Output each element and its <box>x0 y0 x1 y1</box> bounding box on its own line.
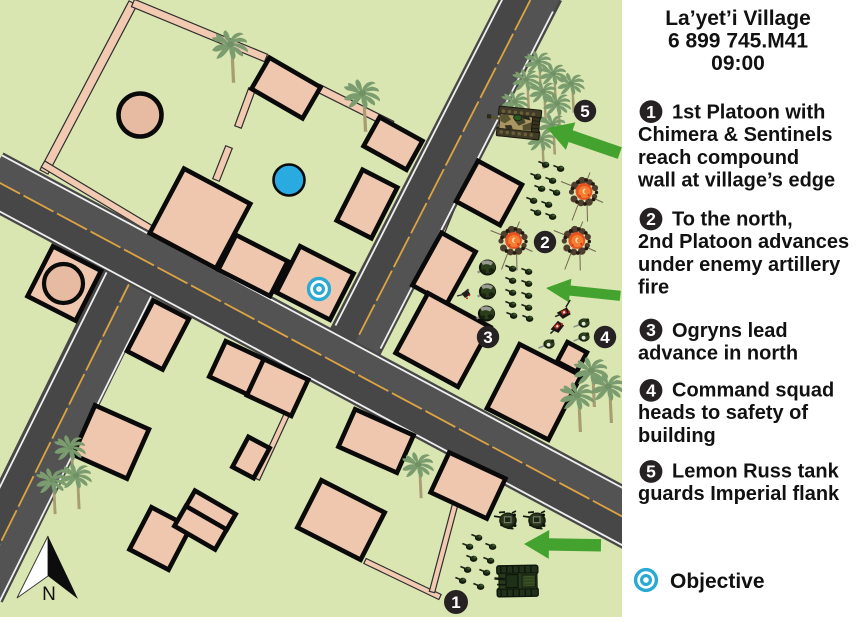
svg-text:guards Imperial flank: guards Imperial flank <box>638 483 840 505</box>
svg-text:2: 2 <box>646 209 656 229</box>
svg-text:Command squad: Command squad <box>672 380 834 402</box>
svg-text:5: 5 <box>580 102 589 121</box>
svg-text:N: N <box>42 584 56 605</box>
svg-text:Lemon Russ tank: Lemon Russ tank <box>672 461 840 483</box>
svg-text:wall at village’s edge: wall at village’s edge <box>637 170 835 192</box>
svg-text:advance in north: advance in north <box>638 343 798 365</box>
svg-text:1: 1 <box>646 102 656 122</box>
svg-text:4: 4 <box>600 328 610 347</box>
svg-text:1st Platoon with: 1st Platoon with <box>672 102 825 124</box>
svg-text:reach compound: reach compound <box>638 147 799 169</box>
svg-text:09:00: 09:00 <box>711 52 765 75</box>
svg-text:heads to safety of: heads to safety of <box>638 402 808 424</box>
svg-text:6 899 745.M41: 6 899 745.M41 <box>668 30 808 53</box>
svg-text:5: 5 <box>646 462 656 482</box>
svg-text:2nd Platoon advances: 2nd Platoon advances <box>638 231 849 253</box>
svg-text:4: 4 <box>646 381 656 401</box>
svg-text:fire: fire <box>638 277 669 299</box>
svg-text:3: 3 <box>483 328 492 347</box>
svg-text:La’yet’i Village: La’yet’i Village <box>665 7 811 30</box>
svg-text:Objective: Objective <box>670 570 765 593</box>
svg-text:building: building <box>638 425 716 447</box>
svg-text:Chimera & Sentinels: Chimera & Sentinels <box>638 124 833 146</box>
svg-text:3: 3 <box>646 320 656 340</box>
svg-text:1: 1 <box>451 593 460 612</box>
svg-text:Ogryns lead: Ogryns lead <box>672 320 788 342</box>
svg-text:under enemy artillery: under enemy artillery <box>638 254 841 276</box>
svg-text:To the north,: To the north, <box>672 209 793 231</box>
svg-text:2: 2 <box>540 233 549 252</box>
